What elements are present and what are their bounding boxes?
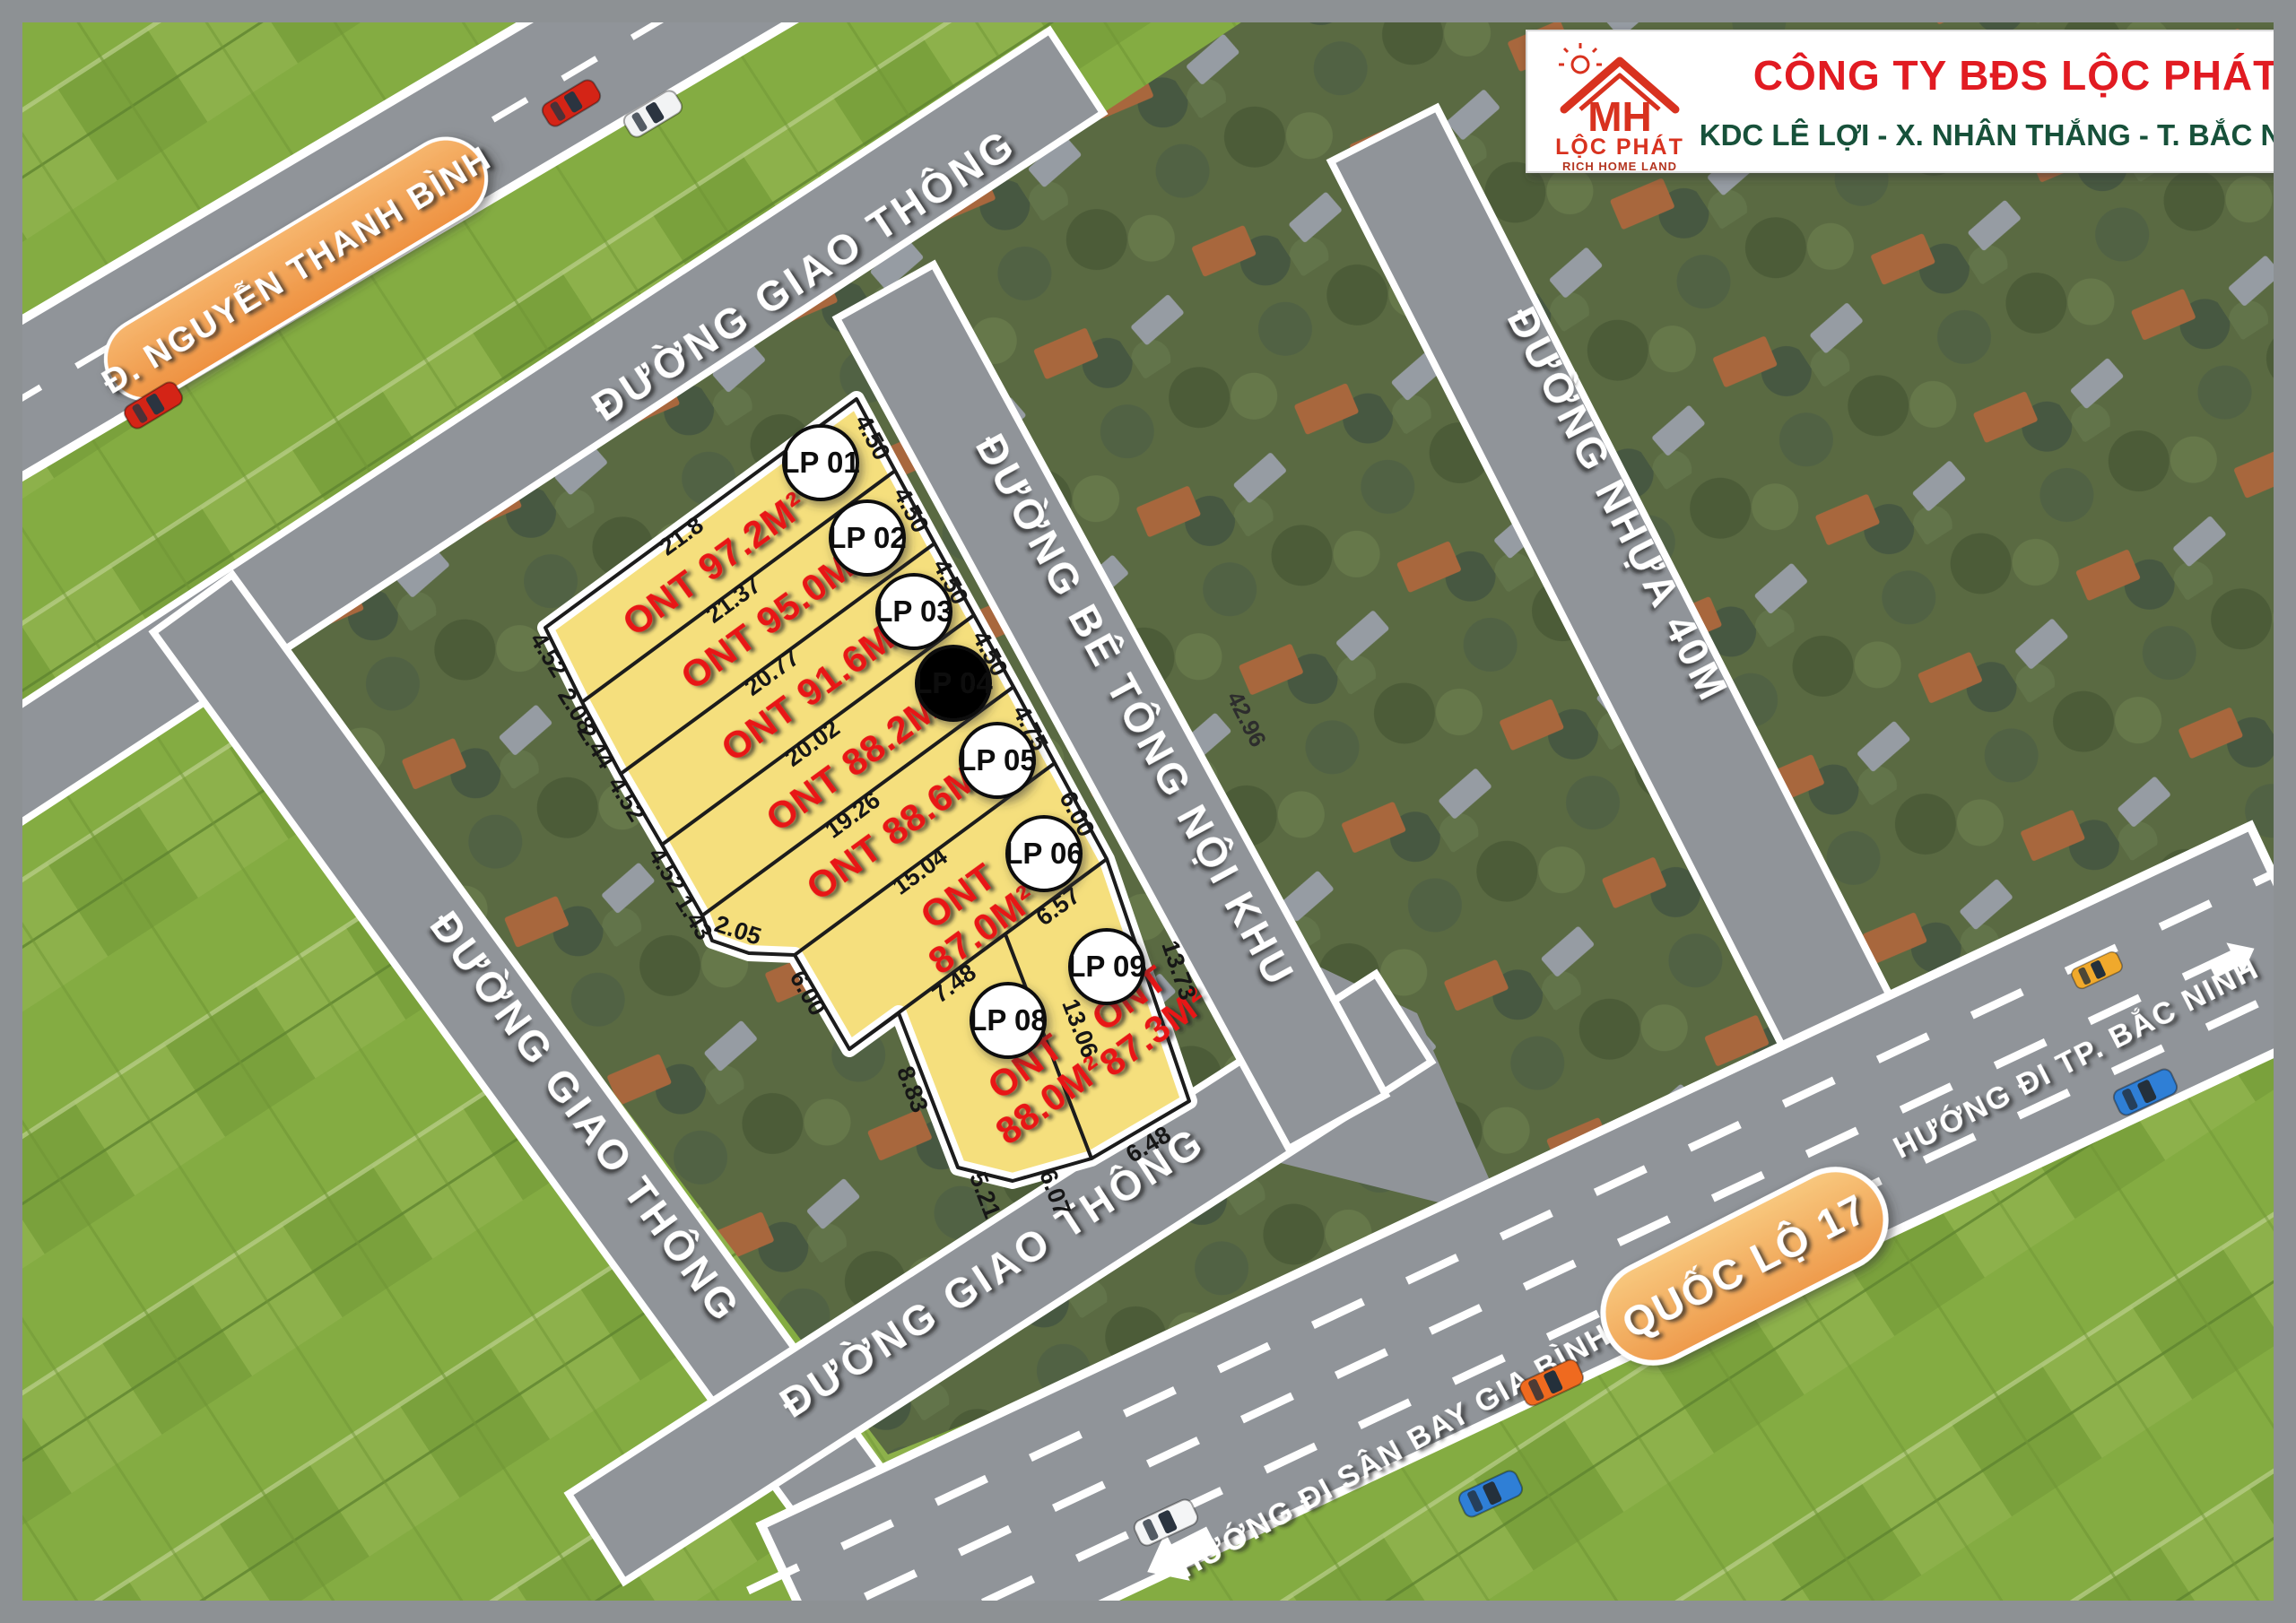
svg-text:LP 06: LP 06 [1004, 837, 1083, 870]
logo-tagline: RICH HOME LAND [1562, 160, 1677, 173]
plot-id-badge: LP 09 [1067, 930, 1145, 1003]
plot-id-badge: LP 06 [1004, 817, 1083, 890]
svg-text:LP 03: LP 03 [874, 595, 952, 628]
plot-id-badge: LP 08 [969, 984, 1047, 1057]
logo-name: LỘC PHÁT [1555, 133, 1684, 160]
logo-monogram: MH [1587, 93, 1652, 140]
svg-text:LP 01: LP 01 [781, 446, 859, 479]
company-name: CÔNG TY BĐS LỘC PHÁT [1753, 52, 2280, 99]
land-plot-map: ĐƯỜNG GIAO THÔNG ĐƯỜNG GIAO THÔNG ĐƯỜNG … [0, 0, 2296, 1623]
svg-text:LP 04: LP 04 [914, 666, 993, 699]
plot-id-badge: LP 02 [828, 501, 906, 575]
plot-id-badge: LP 03 [874, 575, 952, 648]
plot-id-badge: LP 04 [914, 647, 993, 720]
plot-id-badge: LP 01 [781, 426, 859, 499]
svg-text:LP 09: LP 09 [1067, 950, 1145, 983]
header-card: MH LỘC PHÁT RICH HOME LAND CÔNG TY BĐS L… [1526, 30, 2296, 173]
project-location: KDC LÊ LỢI - X. NHÂN THẮNG - T. BẮC NINH [1700, 118, 2296, 152]
svg-text:LP 05: LP 05 [958, 743, 1036, 777]
plot-id-badge: LP 05 [958, 724, 1036, 797]
svg-text:LP 02: LP 02 [828, 521, 906, 554]
svg-text:LP 08: LP 08 [969, 1003, 1047, 1037]
